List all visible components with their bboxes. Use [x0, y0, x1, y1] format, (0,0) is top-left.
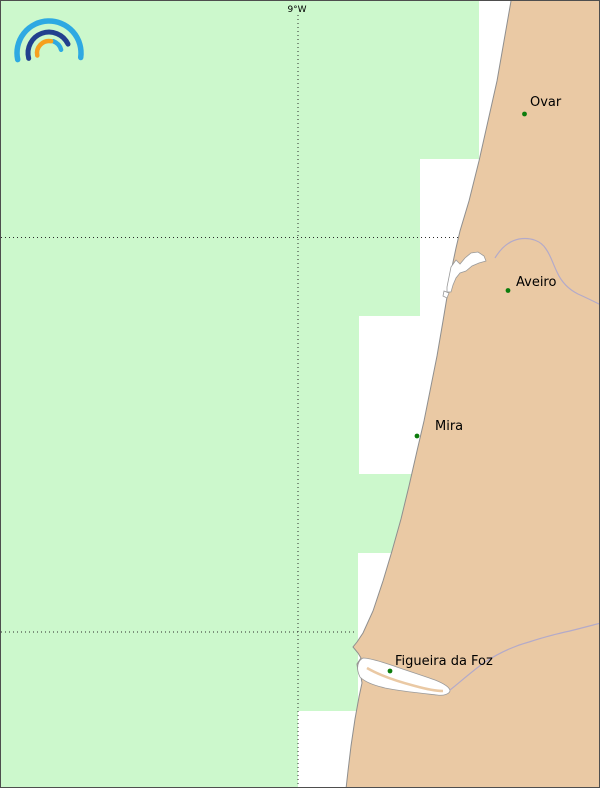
city-marker-mira: [415, 434, 420, 439]
city-label-aveiro: Aveiro: [516, 275, 556, 290]
weather-map: 9°W Ovar Aveiro Mira Figueira da Foz: [1, 1, 600, 788]
city-label-ovar: Ovar: [530, 95, 562, 110]
meridian-label: 9°W: [287, 5, 306, 15]
city-marker-ovar: [522, 112, 527, 117]
city-label-figueira: Figueira da Foz: [395, 654, 493, 669]
city-label-mira: Mira: [435, 419, 463, 434]
city-marker-figueira: [388, 669, 393, 674]
map-canvas: 9°W Ovar Aveiro Mira Figueira da Foz: [0, 0, 600, 788]
city-marker-aveiro: [506, 288, 511, 293]
